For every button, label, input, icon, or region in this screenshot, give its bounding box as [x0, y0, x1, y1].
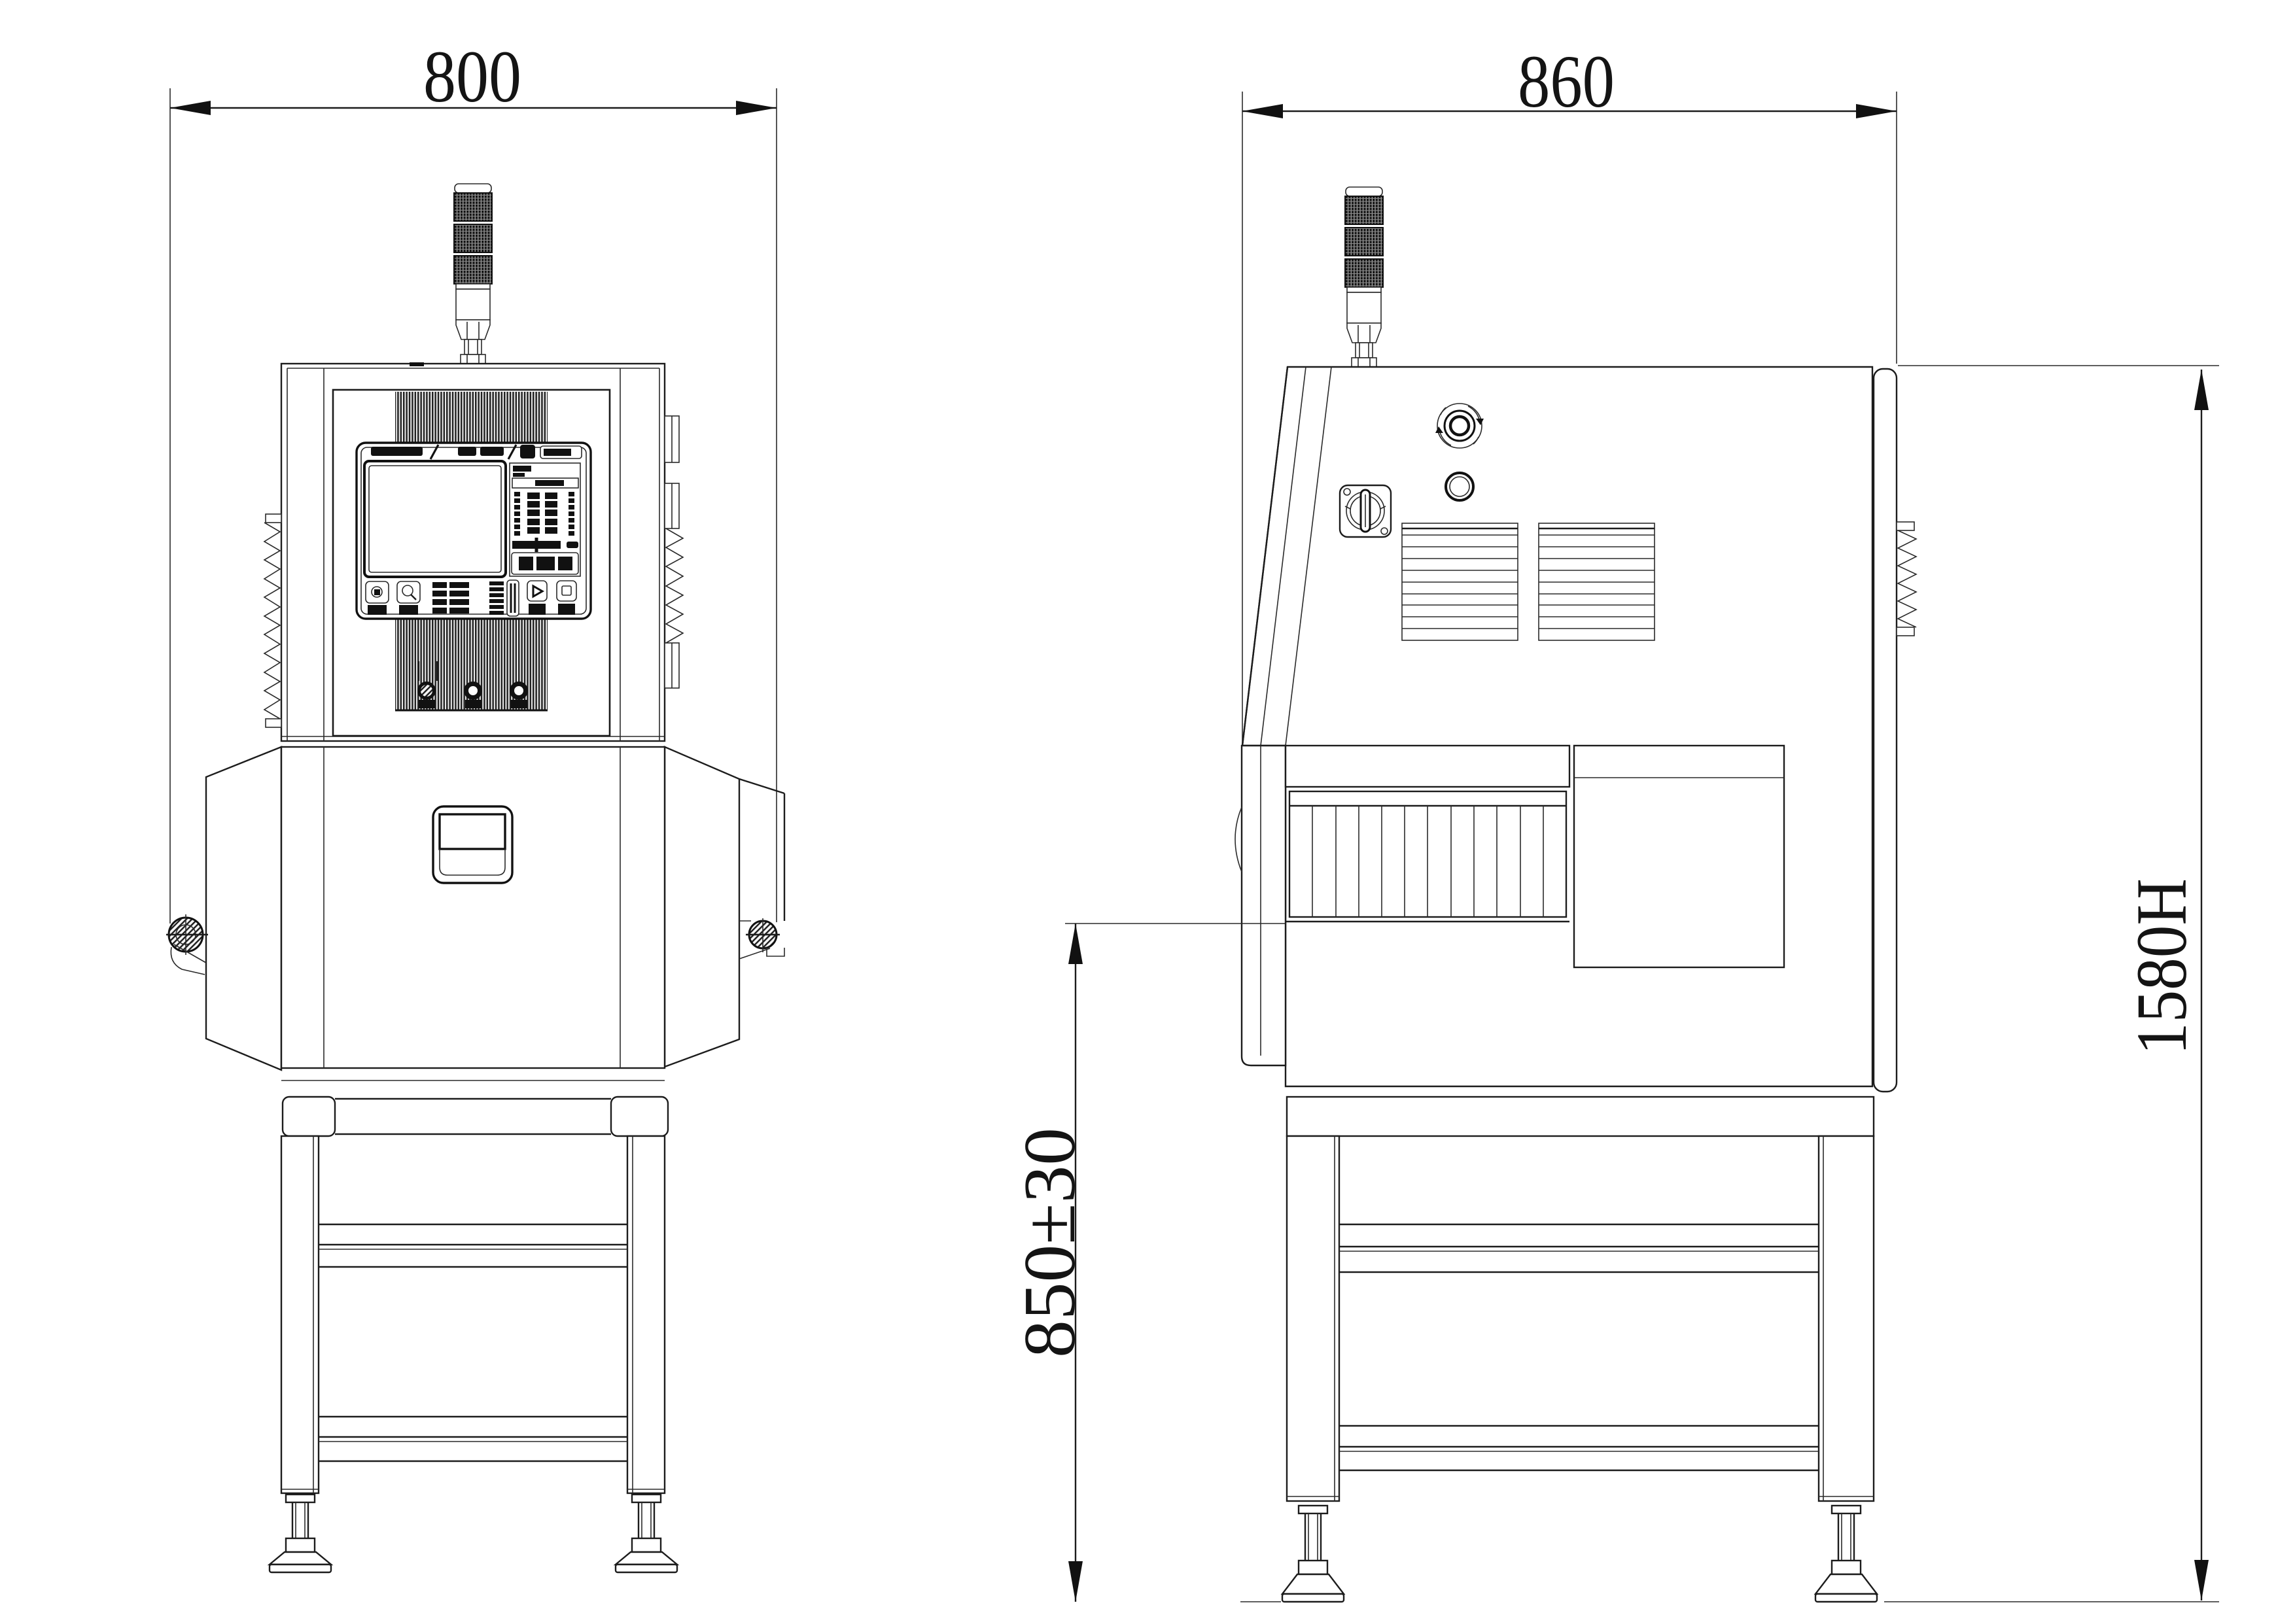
svg-text:1580H: 1580H [2122, 878, 2201, 1055]
svg-text:850±30: 850±30 [1009, 1128, 1091, 1358]
svg-text:800: 800 [423, 36, 521, 118]
svg-text:860: 860 [1518, 40, 1615, 123]
